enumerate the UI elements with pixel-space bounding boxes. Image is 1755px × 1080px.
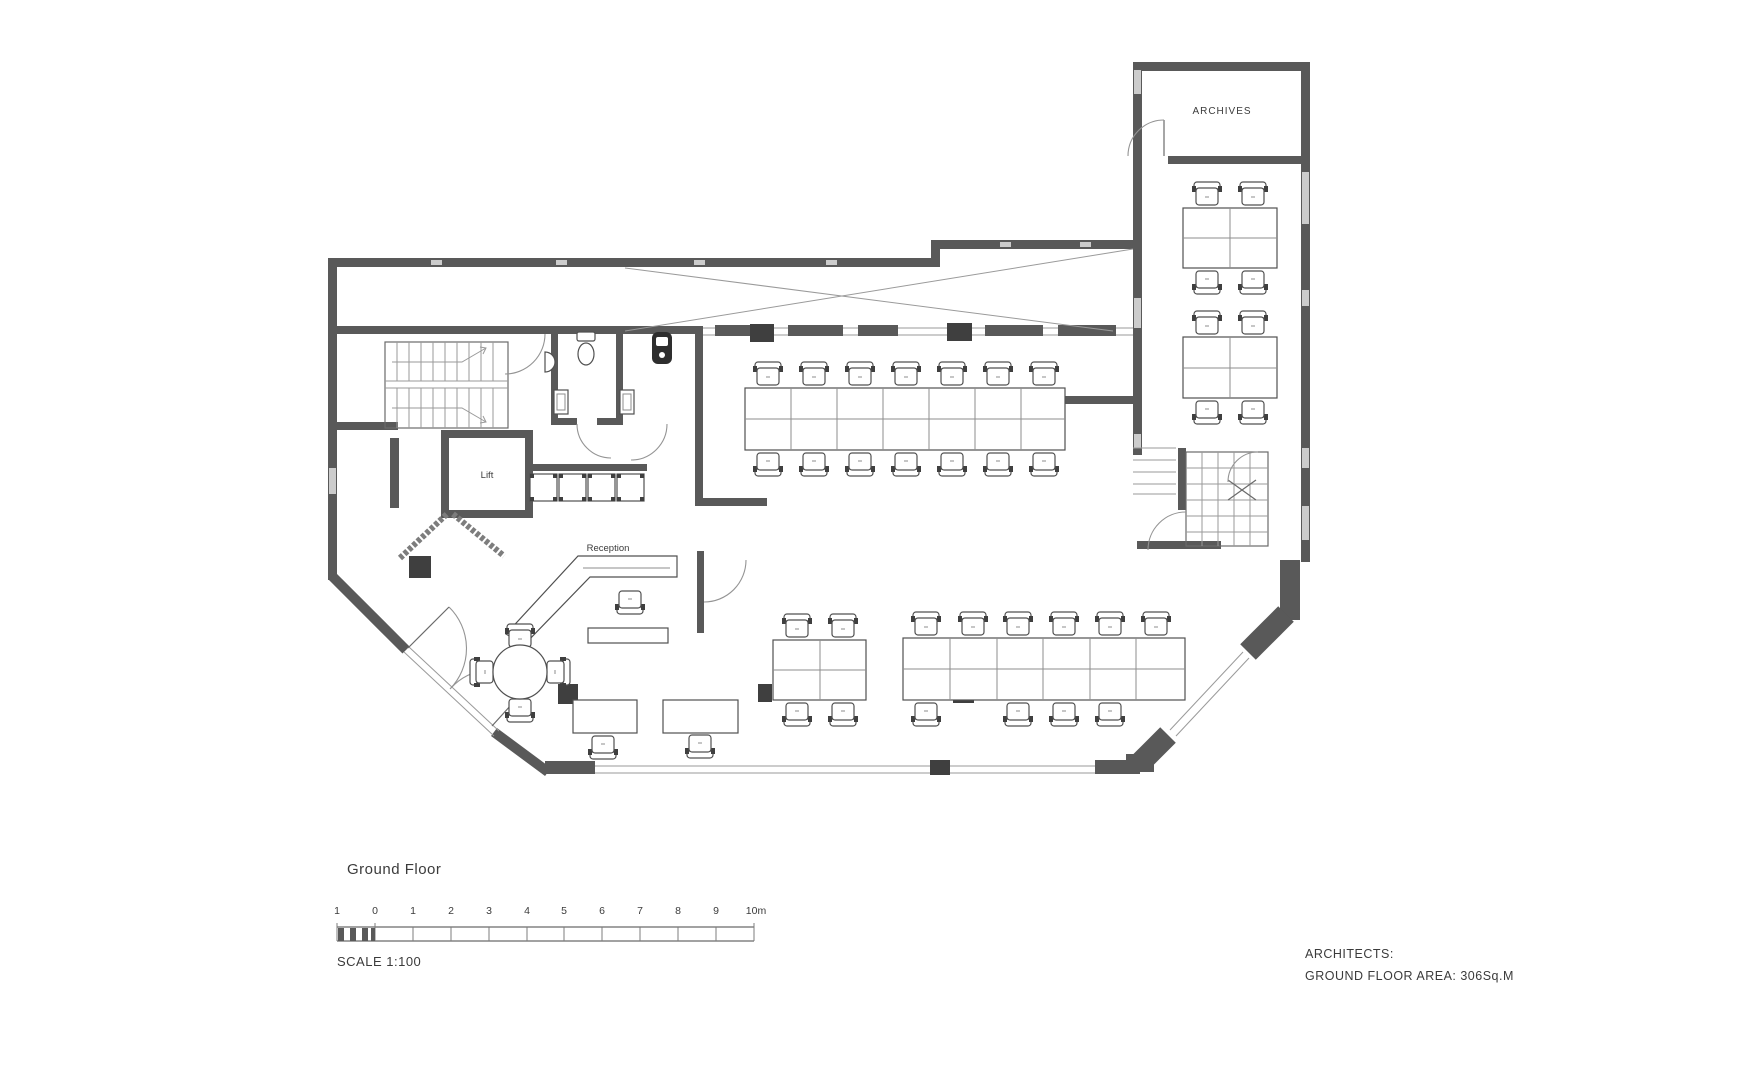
wing-desk-cluster-1 bbox=[1183, 182, 1277, 294]
title-block: Ground Floor bbox=[347, 861, 441, 878]
area-label: GROUND FLOOR AREA: 306Sq.M bbox=[1305, 969, 1514, 983]
desk-bank-upper bbox=[745, 362, 1065, 476]
page-title: Ground Floor bbox=[347, 861, 441, 878]
floor-plan-sheet: Lift bbox=[0, 0, 1755, 1080]
staircase bbox=[385, 342, 508, 428]
scale-tick: 0 bbox=[372, 905, 378, 917]
scale-tick: 7 bbox=[637, 905, 643, 917]
chair bbox=[547, 657, 570, 687]
desk-single-2 bbox=[663, 700, 738, 758]
scale-tick: 4 bbox=[524, 905, 530, 917]
chair bbox=[505, 699, 535, 722]
scale-tick: 5 bbox=[561, 905, 567, 917]
storage-cupboards bbox=[527, 464, 647, 501]
scale-tick: 2 bbox=[448, 905, 454, 917]
desk-bank-lower-left bbox=[773, 614, 866, 726]
reception-area: Reception bbox=[506, 543, 746, 645]
chair bbox=[685, 735, 715, 758]
desk-bank-lower-right bbox=[903, 612, 1185, 726]
round-table bbox=[470, 624, 570, 722]
toilet-icon bbox=[577, 332, 595, 365]
archives-room: ARCHIVES bbox=[1128, 106, 1252, 156]
scale-tick: 1 bbox=[410, 905, 416, 917]
archives-label: ARCHIVES bbox=[1192, 106, 1251, 117]
scale-tick: 6 bbox=[599, 905, 605, 917]
chair bbox=[615, 591, 645, 614]
reception-label: Reception bbox=[587, 543, 630, 554]
lift: Lift bbox=[400, 430, 533, 558]
architects-label: ARCHITECTS: bbox=[1305, 947, 1394, 961]
chair bbox=[588, 736, 618, 759]
chair bbox=[505, 624, 535, 647]
lift-label: Lift bbox=[481, 470, 494, 481]
scale-tick: 3 bbox=[486, 905, 492, 917]
scale-tick: 10m bbox=[746, 905, 767, 917]
wing-desk-cluster-2 bbox=[1183, 311, 1277, 424]
urinal-icon bbox=[652, 332, 672, 364]
chair bbox=[470, 657, 493, 687]
footer-notes: ARCHITECTS: GROUND FLOOR AREA: 306Sq.M bbox=[1305, 947, 1514, 983]
desk-single-1 bbox=[573, 700, 637, 759]
scale-tick: 9 bbox=[713, 905, 719, 917]
scale-bar: 1 0 1 2 3 4 5 6 7 8 9 10m SCALE 1:100 bbox=[334, 905, 766, 969]
floor-plan-drawing: Lift bbox=[0, 0, 1755, 1080]
scale-tick: 8 bbox=[675, 905, 681, 917]
scale-label: SCALE 1:100 bbox=[337, 954, 421, 969]
utility-room bbox=[1133, 448, 1268, 550]
scale-tick: 1 bbox=[334, 905, 340, 917]
